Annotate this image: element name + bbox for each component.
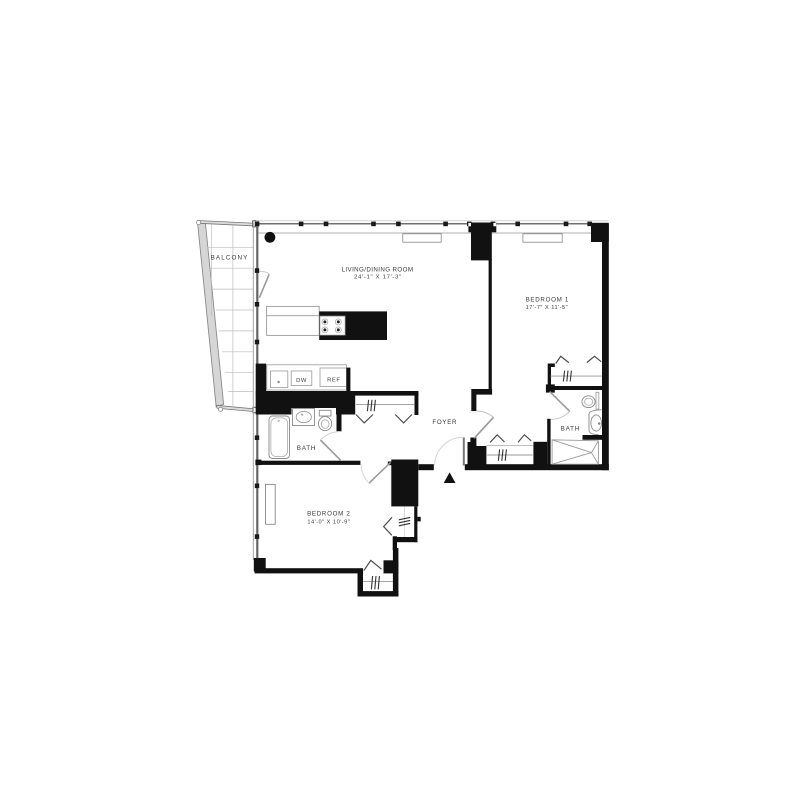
svg-text:BATH: BATH [297, 445, 317, 452]
svg-text:BALCONY: BALCONY [211, 255, 249, 262]
svg-text:BATH: BATH [561, 426, 581, 433]
svg-text:BEDROOM 1: BEDROOM 1 [526, 296, 569, 303]
svg-text:DW: DW [296, 378, 307, 384]
svg-text:14'-0" X 10'-9": 14'-0" X 10'-9" [307, 520, 350, 526]
svg-text:BEDROOM 2: BEDROOM 2 [307, 511, 350, 518]
svg-text:24'-1" X 17'-3": 24'-1" X 17'-3" [354, 275, 402, 281]
svg-text:17'-7" X 11'-5": 17'-7" X 11'-5" [526, 305, 568, 311]
svg-text:LIVING/DINING ROOM: LIVING/DINING ROOM [342, 267, 414, 274]
svg-text:REF: REF [327, 378, 340, 384]
svg-text:FOYER: FOYER [432, 419, 457, 426]
